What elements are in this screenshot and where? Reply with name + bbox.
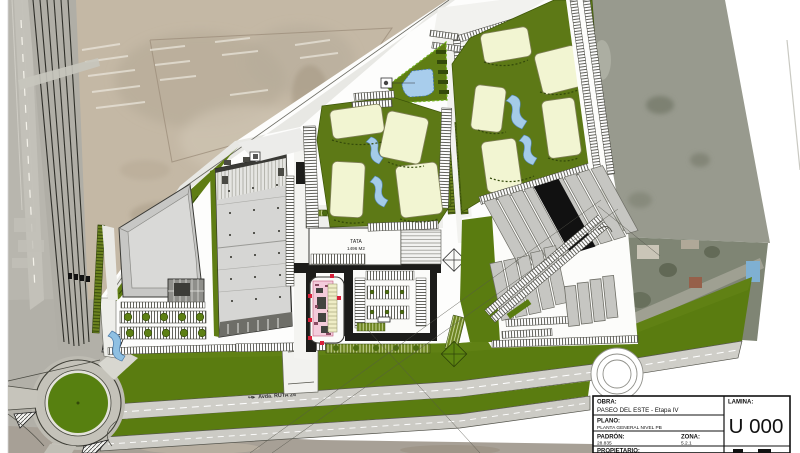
svg-text:PLANO:: PLANO:	[597, 419, 620, 425]
svg-text:28.835: 28.835	[597, 441, 612, 447]
svg-text:LAMINA:: LAMINA:	[728, 400, 753, 406]
svg-text:PLANTA GENERAL NIVEL PB: PLANTA GENERAL NIVEL PB	[597, 425, 662, 431]
svg-text:OBRA:: OBRA:	[597, 400, 617, 406]
svg-text:PASEO DEL ESTE - Etapa IV: PASEO DEL ESTE - Etapa IV	[597, 407, 679, 414]
svg-text:1496 M2: 1496 M2	[347, 246, 365, 251]
svg-text:PROPIETARIO:: PROPIETARIO:	[597, 449, 640, 453]
svg-text:ZONA:: ZONA:	[681, 435, 700, 441]
svg-text:5.2.1: 5.2.1	[681, 441, 692, 447]
svg-text:PADRÓN:: PADRÓN:	[597, 433, 625, 441]
svg-text:U 000: U 000	[729, 415, 784, 438]
svg-text:TATA: TATA	[350, 239, 362, 245]
